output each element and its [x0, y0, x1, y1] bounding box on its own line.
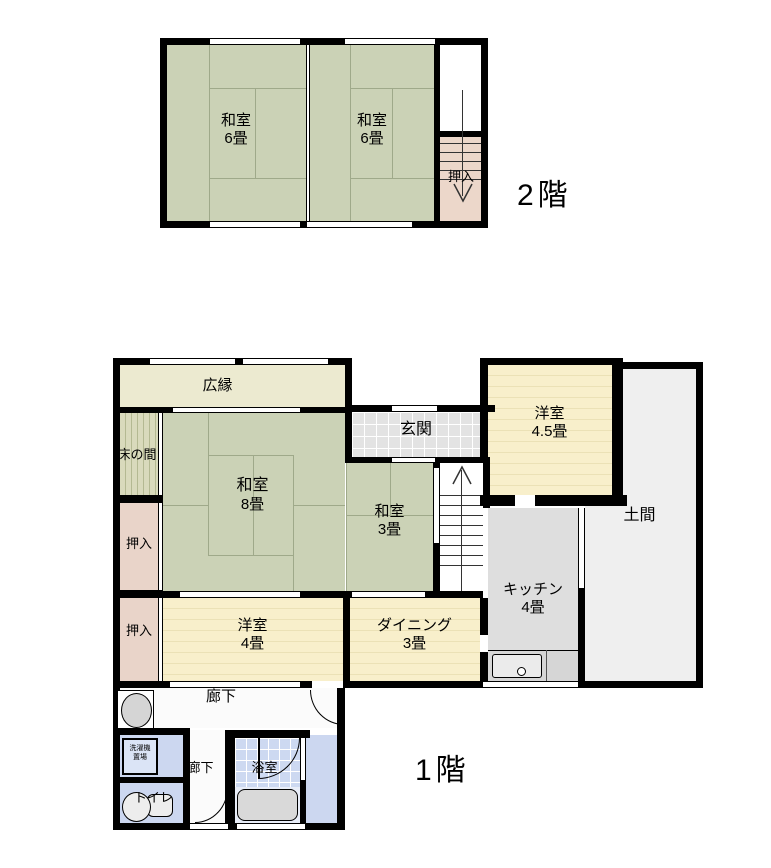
floor-plan-canvas: 和室 6畳 和室 6畳 押入 2階 [0, 0, 771, 868]
kitchen-counter-divider [546, 650, 547, 681]
wall [483, 457, 490, 508]
stair-up-arrow-icon [450, 464, 474, 486]
room-name: 洋室 [215, 617, 290, 635]
window [578, 508, 585, 588]
room-size: 8畳 [215, 496, 290, 514]
wall [435, 457, 490, 463]
wall [225, 735, 235, 830]
tatami-seam [209, 88, 306, 89]
room-label-washitsu6-right: 和室 6畳 [332, 112, 412, 147]
room-label-kitchen: キッチン 4畳 [492, 581, 574, 616]
sliding-door [180, 591, 300, 598]
wall [578, 588, 585, 681]
room-size: 3畳 [352, 635, 477, 653]
room-label-yoshitsu4: 洋室 4畳 [215, 617, 290, 652]
wall [480, 652, 488, 681]
room-size: 6畳 [196, 130, 276, 148]
room-name: 和室 [352, 503, 427, 521]
wall [578, 681, 703, 688]
bathtub-icon [237, 789, 298, 821]
wall [343, 598, 350, 681]
door-opening [515, 495, 535, 506]
wall [113, 495, 163, 503]
threshold [190, 823, 228, 830]
room-label-oshiire-2f: 押入 [439, 169, 483, 184]
room-size: 3畳 [352, 521, 427, 539]
room-size: 6畳 [332, 130, 412, 148]
room-size: 4.5畳 [512, 423, 587, 441]
tatami-seam [209, 178, 306, 179]
room-label-hiroen: 広縁 [185, 377, 250, 395]
sliding-door [433, 468, 440, 543]
wall [113, 681, 170, 688]
tatami-seam [163, 505, 208, 506]
room-size: 4畳 [492, 599, 574, 617]
room-name: 和室 [332, 112, 412, 130]
room-doma-upper [623, 369, 696, 508]
room-label-oshiire-lower: 押入 [117, 623, 161, 638]
window [483, 681, 578, 688]
laundry-label-line1: 洗濯機 [124, 744, 156, 753]
room-oshiire-lower [120, 598, 158, 681]
floor1-title: 1階 [415, 745, 470, 789]
room-label-washitsu8: 和室 8畳 [215, 477, 290, 514]
room-changing-area [306, 735, 337, 823]
room-label-doma: 土間 [612, 507, 667, 526]
room-label-oshiire-upper: 押入 [117, 536, 161, 551]
stair-direction-line [461, 470, 462, 591]
window [243, 358, 328, 365]
floor2-title: 2階 [517, 170, 572, 214]
stair-tread [440, 161, 481, 162]
wall [535, 495, 627, 506]
washing-machine-box: 洗濯機 置場 [122, 738, 158, 775]
room-doma-lower [585, 506, 696, 681]
wall [163, 591, 180, 598]
door-opening [300, 738, 306, 780]
wall [300, 591, 352, 598]
tatami-seam [346, 462, 347, 591]
tatami-seam [350, 178, 434, 179]
wall [300, 780, 306, 823]
wall [480, 358, 488, 463]
room-label-tokonoma: 床の間 [112, 447, 162, 462]
wall [113, 728, 190, 735]
room-label-dining: ダイニング 3畳 [352, 617, 477, 652]
window [307, 221, 412, 228]
window [345, 38, 435, 45]
sliding-door [352, 591, 425, 598]
wall [163, 407, 173, 413]
wall [345, 412, 352, 462]
faucet-icon [517, 667, 526, 676]
room-label-toilet: トイレ [126, 790, 181, 805]
wall [113, 407, 163, 413]
closet-sliding-door [158, 598, 163, 681]
wall [113, 777, 190, 783]
wall [113, 823, 190, 830]
room-name: 洋室 [512, 405, 587, 423]
door-opening [480, 635, 488, 652]
laundry-label-line2: 置場 [124, 753, 156, 762]
wall [480, 358, 623, 365]
wall [480, 598, 488, 635]
room-label-rouka-side: 廊下 [177, 760, 224, 775]
room-label-rouka-main: 廊下 [195, 688, 247, 706]
kitchen-sink-icon [492, 654, 542, 678]
wall [345, 358, 352, 412]
window [210, 221, 300, 228]
room-name: 和室 [196, 112, 276, 130]
sliding-door [392, 457, 435, 463]
window [150, 358, 235, 365]
stair-tread [440, 152, 481, 153]
tatami-seam [293, 556, 294, 591]
room-label-yoshitsu45: 洋室 4.5畳 [512, 405, 587, 440]
wall [228, 823, 237, 830]
room-size: 4畳 [215, 635, 290, 653]
door-opening [312, 681, 343, 688]
wall [345, 457, 392, 463]
threshold [237, 823, 305, 830]
room-name: キッチン [492, 581, 574, 599]
floor2-stair-landing [440, 45, 481, 131]
sliding-door [170, 681, 300, 688]
room-name: ダイニング [352, 617, 477, 635]
wall [300, 681, 312, 688]
wall [225, 730, 310, 738]
tatami-seam [294, 505, 345, 506]
entry-sliding-door [392, 405, 437, 412]
wall [696, 362, 703, 688]
room-label-bath: 浴室 [241, 760, 288, 775]
window [210, 38, 300, 45]
room-name: 和室 [215, 477, 290, 496]
wall [343, 681, 483, 688]
room-label-washitsu3: 和室 3畳 [352, 503, 427, 538]
room-label-genkan: 玄関 [386, 421, 446, 440]
wall [425, 591, 483, 598]
wall [113, 590, 163, 598]
wall [612, 362, 623, 506]
tatami-seam [208, 412, 209, 455]
sliding-door [173, 407, 300, 413]
wall [616, 362, 703, 369]
stair-down-arrow-icon [451, 182, 475, 204]
wall [345, 405, 392, 412]
wall [300, 407, 345, 413]
stair-tread [440, 143, 481, 144]
room-label-washitsu6-left: 和室 6畳 [196, 112, 276, 147]
wash-basin-icon [121, 693, 152, 728]
